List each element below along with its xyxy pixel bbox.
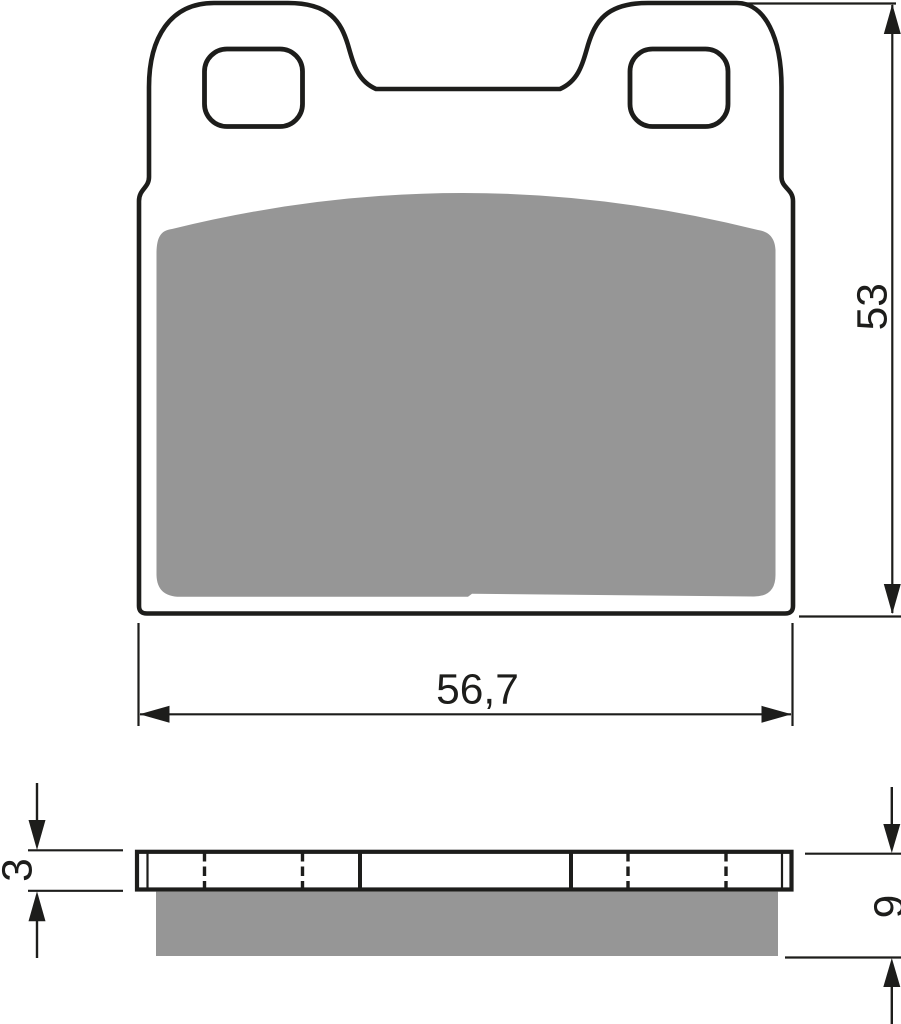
svg-text:53: 53 bbox=[850, 283, 897, 330]
svg-text:56,7: 56,7 bbox=[436, 667, 519, 714]
svg-text:9: 9 bbox=[867, 895, 901, 919]
svg-text:3: 3 bbox=[0, 858, 42, 882]
